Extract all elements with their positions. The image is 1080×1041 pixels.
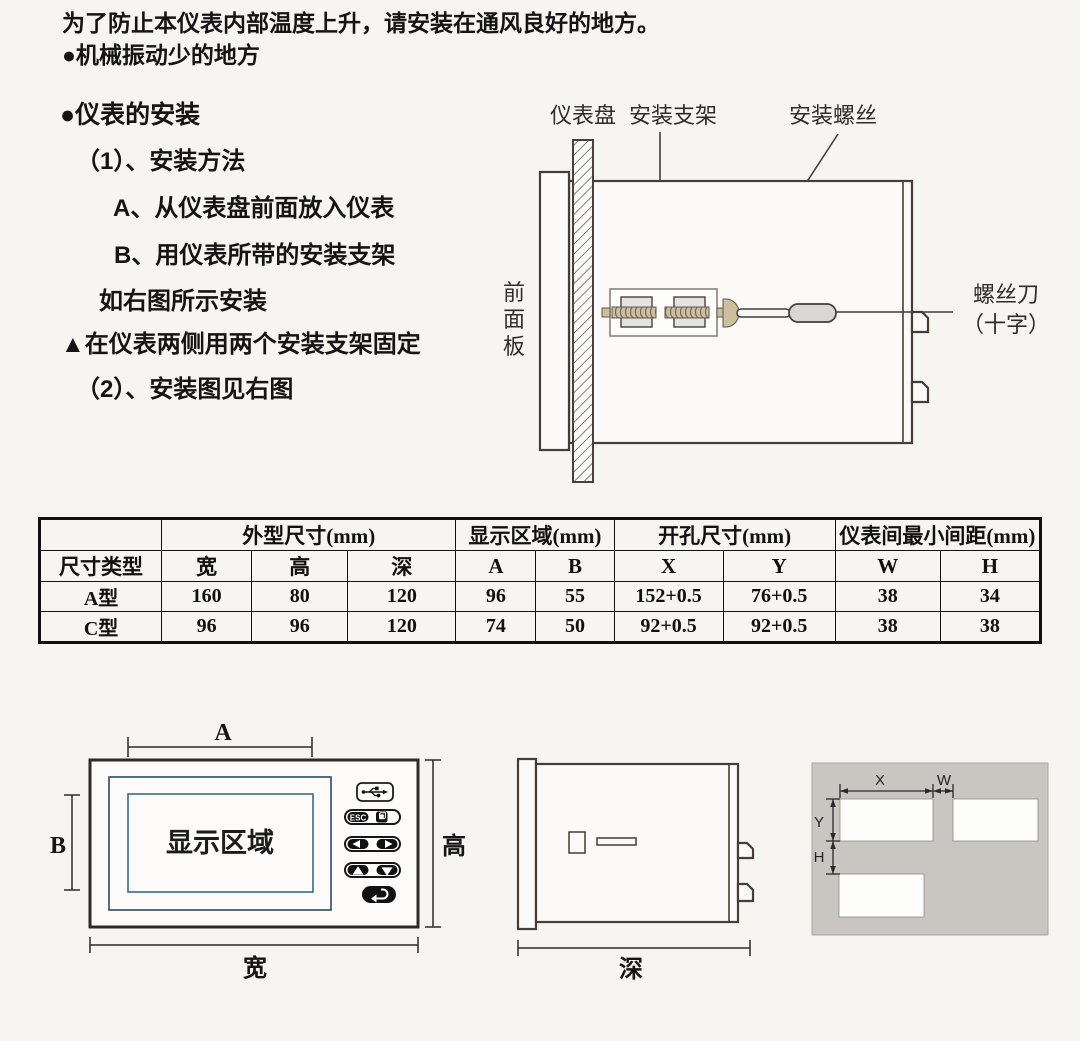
screwdriver-shaft [737,309,790,317]
side-tab-bottom [738,884,753,901]
svg-text:前: 前 [503,280,525,305]
usb-port-button [357,783,393,801]
table-cell: C型 [40,612,162,643]
left-right-button [345,837,400,851]
screwdriver-handle [789,304,836,322]
dim-x-label: X [875,772,885,789]
dim-y-label: Y [814,814,824,831]
side-body [536,764,738,922]
table-cell: 96 [162,612,252,643]
table-cell-empty [40,519,162,551]
dim-w-label: W [937,772,952,789]
bracket-label: 安装支架 [629,103,717,128]
group-header-outline: 外型尺寸(mm) [162,519,456,551]
screwdriver-label-2: （十字） [962,312,1050,337]
enter-button [362,886,396,903]
table-cell: A型 [40,582,162,612]
table-cell: 92+0.5 [614,612,723,643]
front-panel-label: 前 面 板 [503,280,525,359]
table-cell: 120 [348,582,456,612]
install-warning: ▲在仪表两侧用两个安装支架固定 [61,324,421,359]
installation-diagram: 仪表盘 安装支架 安装螺丝 [490,90,1080,502]
screw-label: 安装螺丝 [789,103,877,128]
table-row-c-type: C型 96 96 120 74 50 92+0.5 92+0.5 38 38 [40,612,1041,643]
side-view-diagram: 深 [495,700,800,1000]
screwdriver-label-1: 螺丝刀 [973,282,1039,307]
svg-text:高: 高 [442,832,466,860]
sub-header: B [536,551,614,582]
cutout-hole-top-right [953,799,1038,841]
table-cell: 96 [456,582,536,612]
table-cell: 160 [162,582,252,612]
dimension-depth: 深 [518,940,750,983]
table-cell: 96 [252,612,348,643]
sub-header: 宽 [162,551,252,582]
table-group-header-row: 外型尺寸(mm) 显示区域(mm) 开孔尺寸(mm) 仪表间最小间距(mm) [40,519,1041,551]
table-row-a-type: A型 160 80 120 96 55 152+0.5 76+0.5 38 34 [40,582,1041,612]
sub-header: W [835,551,940,582]
install-item-a: A、从仪表盘前面放入仪表 [113,188,394,223]
sub-header: Y [723,551,835,582]
dimension-height: 高 [425,760,466,927]
dimension-width: 宽 [90,937,418,982]
side-bezel [518,759,536,929]
sub-header: 尺寸类型 [40,551,162,582]
sub-header: H [940,551,1040,582]
table-cell: 152+0.5 [614,582,723,612]
front-view-diagram: A 显示区域 B [45,700,485,1000]
install-note: 如右图所示安装 [99,281,267,316]
svg-text:面: 面 [503,307,525,332]
cutout-hole-top-left [840,799,933,841]
sub-header: X [614,551,723,582]
table-sub-header-row: 尺寸类型 宽 高 深 A B X Y W H [40,551,1041,582]
mounting-panel-hatched [573,140,593,482]
dimension-b: B [50,795,80,890]
sub-header: 高 [252,551,348,582]
group-header-spacing: 仪表间最小间距(mm) [835,519,1040,551]
svg-text:板: 板 [503,334,525,359]
svg-text:B: B [50,833,66,859]
dim-h-label: H [814,849,825,866]
table-cell: 38 [835,582,940,612]
table-cell: 92+0.5 [723,612,835,643]
dimension-a: A [128,720,312,757]
side-tab-top [738,843,753,858]
sub-header: A [456,551,536,582]
install-heading: ●仪表的安装 [60,95,200,131]
table-cell: 74 [456,612,536,643]
svg-text:A: A [214,720,232,746]
esc-page-button: ESC [345,810,400,824]
intro-line-1: 为了防止本仪表内部温度上升，请安装在通风良好的地方。 [62,4,660,38]
group-header-display: 显示区域(mm) [456,519,614,551]
table-cell: 55 [536,582,614,612]
front-bezel [540,172,569,450]
table-cell: 50 [536,612,614,643]
group-header-cutout: 开孔尺寸(mm) [614,519,835,551]
install-item-b: B、用仪表所带的安装支架 [114,235,395,270]
panel-label: 仪表盘 [550,103,616,128]
table-cell: 38 [835,612,940,643]
display-area-label: 显示区域 [166,828,274,858]
svg-text:宽: 宽 [243,954,267,982]
table-cell: 120 [348,612,456,643]
body-tab-bottom [912,382,928,402]
dimension-table: 外型尺寸(mm) 显示区域(mm) 开孔尺寸(mm) 仪表间最小间距(mm) 尺… [38,517,1042,644]
sub-header: 深 [348,551,456,582]
cutout-hole-bottom-left [839,874,924,917]
panel-cutout-diagram: X W Y H [810,755,1060,945]
install-step-1: （1）、安装方法 [76,141,245,176]
table-cell: 80 [252,582,348,612]
table-cell: 76+0.5 [723,582,835,612]
table-cell: 38 [940,612,1040,643]
intro-line-2: ●机械振动少的地方 [62,36,260,70]
manual-page: 为了防止本仪表内部温度上升，请安装在通风良好的地方。 ●机械振动少的地方 ●仪表… [0,0,1080,1041]
up-down-button [345,863,400,877]
body-tab-top [912,312,928,332]
table-cell: 34 [940,582,1040,612]
svg-text:深: 深 [619,956,643,983]
esc-label: ESC [350,814,367,823]
install-step-2: （2）、安装图见右图 [76,369,293,404]
